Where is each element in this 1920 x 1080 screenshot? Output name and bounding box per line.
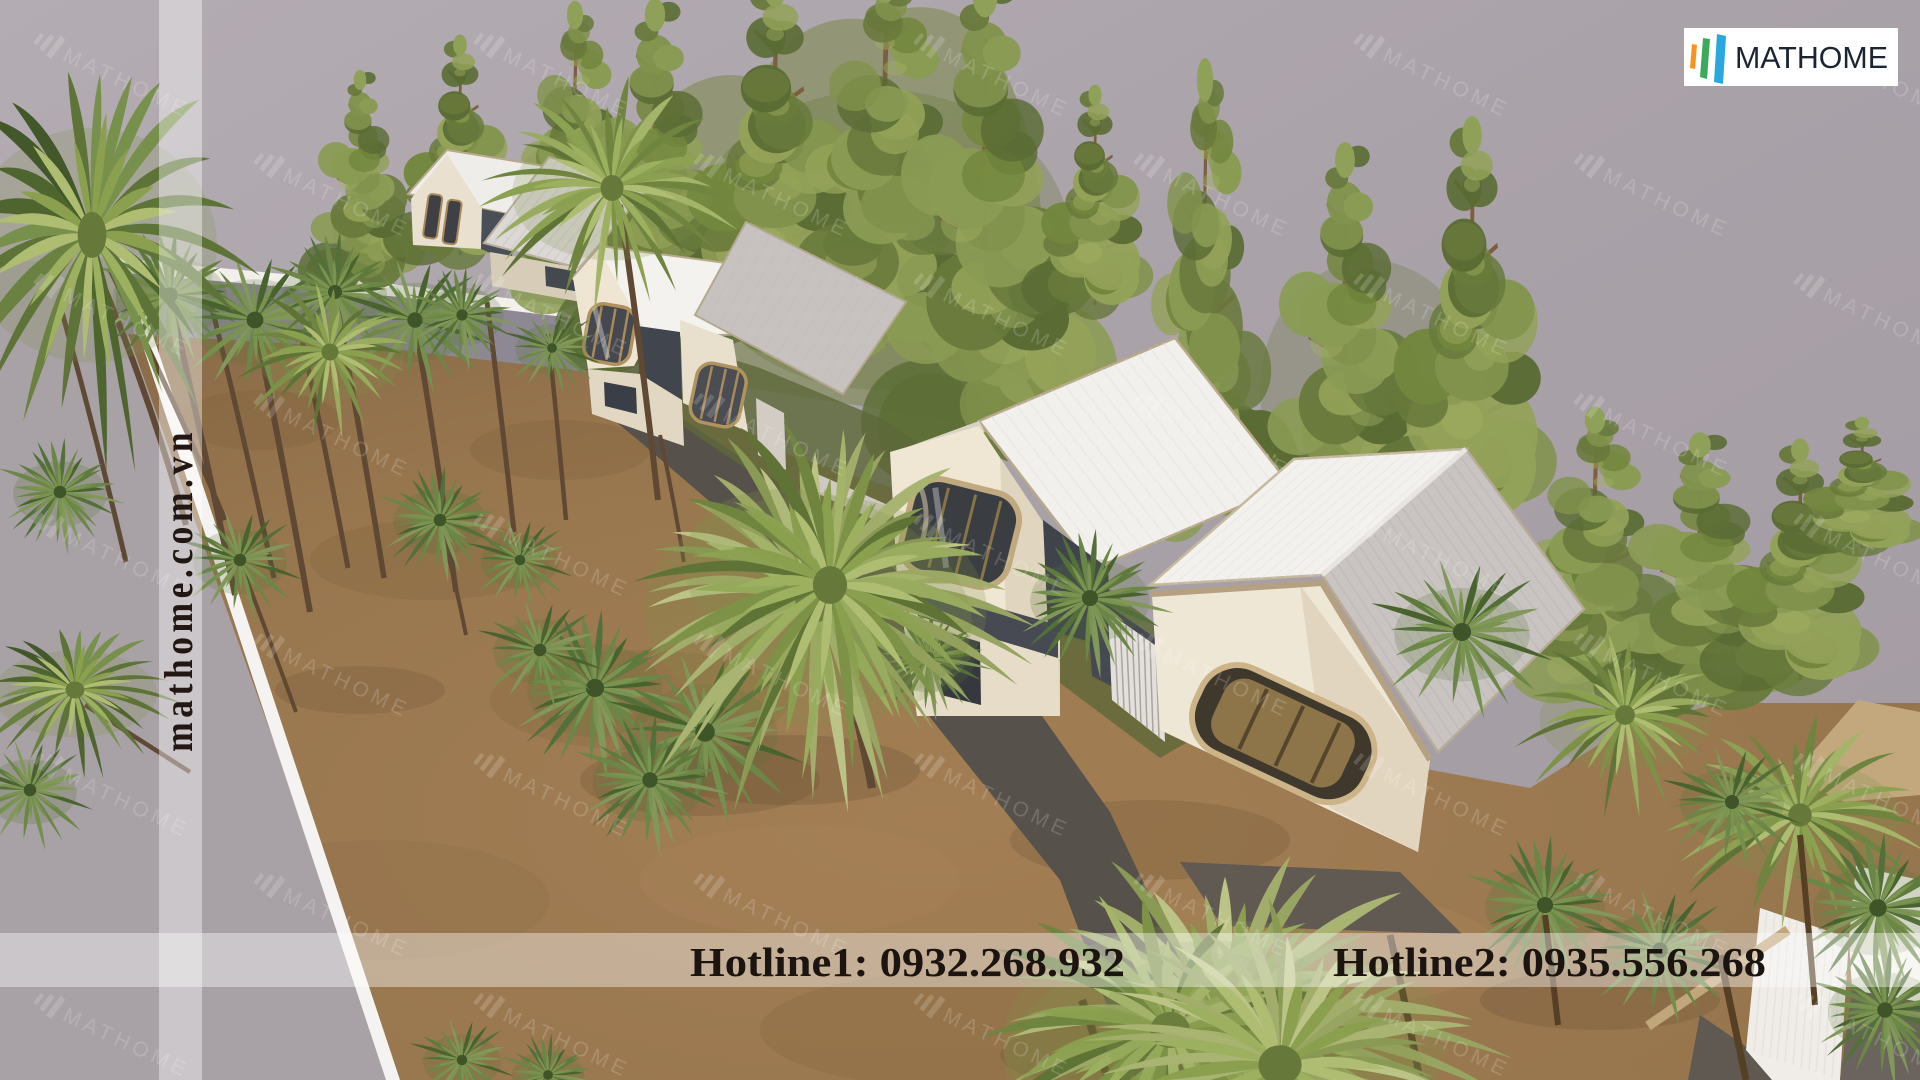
svg-text:Hotline1: 0932.268.932: Hotline1: 0932.268.932 [690, 939, 1125, 985]
svg-text:MATHOME: MATHOME [1735, 40, 1888, 75]
svg-text:Hotline2: 0935.556.268: Hotline2: 0935.556.268 [1333, 939, 1766, 985]
svg-text:mathome.com.vn: mathome.com.vn [156, 428, 201, 752]
